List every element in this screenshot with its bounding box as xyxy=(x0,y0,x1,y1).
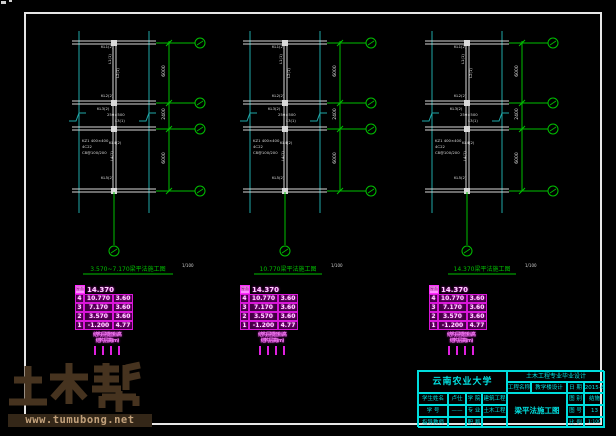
dimension-text: 2400 xyxy=(332,108,338,120)
level-table: 屋面14.370410.7703.6037.1703.6023.5703.601… xyxy=(240,285,304,355)
date-label: 日 期 xyxy=(567,382,584,393)
storey-height: 3.60 xyxy=(467,303,487,312)
plan-scale: 1/100 xyxy=(525,263,537,268)
axis-bubble-mark xyxy=(368,41,374,45)
level-table-caption: 结构层楼面标高结构层高(m) xyxy=(429,332,493,344)
tick-bar xyxy=(456,346,458,355)
dimension-text: 2400 xyxy=(514,108,520,120)
elevation: -1.200 xyxy=(84,321,113,330)
beam-label: 250×500 xyxy=(107,112,125,117)
student-id-label: 学 号 xyxy=(418,405,448,417)
dimension-text: 6000 xyxy=(161,152,167,164)
major-label: 专 业 xyxy=(466,405,482,417)
break-symbol xyxy=(139,113,156,121)
beam-label: KL2(2) xyxy=(454,93,467,98)
level-no: 2 xyxy=(240,312,249,321)
beam-label: KL2(2) xyxy=(101,93,114,98)
student-id-value: —— xyxy=(448,405,466,417)
roof-marker: 屋面 xyxy=(75,285,85,294)
level-row: 1-1.2004.77 xyxy=(75,321,139,330)
level-no: 1 xyxy=(240,321,249,330)
beam-label: KL1(2) xyxy=(272,44,285,49)
student-name-value: 卢仕 xyxy=(448,393,466,405)
plan-title: 3.570~7.170梁平法施工图 xyxy=(90,265,165,273)
level-no: 4 xyxy=(75,294,84,303)
break-symbol xyxy=(240,113,257,121)
axis-bubble-mark xyxy=(111,249,117,253)
drawing-name: 梁平法施工图 xyxy=(507,393,567,428)
elevation: 10.770 xyxy=(249,294,278,303)
axis-bubble-mark xyxy=(197,41,203,45)
break-symbol xyxy=(69,113,86,121)
beam-label: L1(1) xyxy=(278,54,283,64)
beam-label: L3(1) xyxy=(115,118,125,123)
tick-bar xyxy=(464,346,466,355)
elevation: 7.170 xyxy=(438,303,467,312)
beam-label: KL1(2) xyxy=(454,44,467,49)
watermark-brand-glyphs xyxy=(6,360,156,414)
level-no: 4 xyxy=(429,294,438,303)
beam-label: KL5(2) xyxy=(101,175,114,180)
elevation: 7.170 xyxy=(249,303,278,312)
level-table-caption: 结构层楼面标高结构层高(m) xyxy=(240,332,304,344)
college-value: 建筑工程 xyxy=(482,393,507,405)
storey-height: 3.60 xyxy=(278,312,298,321)
level-row: 410.7703.60 xyxy=(75,294,139,303)
beam-label: KL4(2) xyxy=(462,140,475,145)
advisor-value xyxy=(448,417,466,428)
tick-bar xyxy=(110,346,112,355)
beam-label: KZ1 400×400 xyxy=(82,138,109,143)
axis-bubble-mark xyxy=(464,249,470,253)
axis-bubble-mark xyxy=(550,127,556,131)
beam-label: L3(1) xyxy=(468,118,478,123)
axis-bubble-mark xyxy=(197,189,203,193)
level-table-caption: 结构层楼面标高结构层高(m) xyxy=(75,332,139,344)
roof-row: 屋面14.370 xyxy=(429,285,493,294)
roof-row: 屋面14.370 xyxy=(240,285,304,294)
axis-bubble-mark xyxy=(368,189,374,193)
level-no: 2 xyxy=(429,312,438,321)
tick-bar xyxy=(102,346,104,355)
roof-elevation: 14.370 xyxy=(441,286,468,294)
scale-value: 1:100 xyxy=(584,417,605,428)
storey-height: 3.60 xyxy=(113,303,133,312)
level-no: 1 xyxy=(75,321,84,330)
beam-label: KL5(2) xyxy=(272,175,285,180)
advisor-label: 指导教师 xyxy=(418,417,448,428)
plan-title: 14.370梁平法施工图 xyxy=(454,265,511,273)
beam-label: C8@100/200 xyxy=(253,150,278,155)
roof-marker: 屋面 xyxy=(429,285,439,294)
elevation: 10.770 xyxy=(438,294,467,303)
level-row: 1-1.2004.77 xyxy=(429,321,493,330)
title-value xyxy=(482,417,507,428)
plan-scale: 1/100 xyxy=(331,263,343,268)
beam-label: L2(1) xyxy=(468,68,473,78)
axis-bubble-mark xyxy=(197,127,203,131)
beam-label: L1(1) xyxy=(107,54,112,64)
level-table-ticks xyxy=(429,346,493,355)
dimension-text: 6000 xyxy=(514,65,520,77)
roof-elevation: 14.370 xyxy=(252,286,279,294)
beam-label: KL2(2) xyxy=(272,93,285,98)
tick-bar xyxy=(267,346,269,355)
beam-label: KL3(2) xyxy=(268,106,281,111)
beam-label: 250×500 xyxy=(460,112,478,117)
banner-title: 土木工程专业毕业设计 xyxy=(507,371,605,382)
storey-height: 4.77 xyxy=(467,321,487,330)
beam-label: KZ1 400×400 xyxy=(435,138,462,143)
level-row: 23.5703.60 xyxy=(75,312,139,321)
elevation: 3.570 xyxy=(84,312,113,321)
storey-height: 3.60 xyxy=(467,312,487,321)
tick-bar xyxy=(118,346,120,355)
level-table: 屋面14.370410.7703.6037.1703.6023.5703.601… xyxy=(75,285,139,355)
break-symbol xyxy=(492,113,509,121)
scale-label: 比 例 xyxy=(567,417,584,428)
axis-bubble-mark xyxy=(550,41,556,45)
level-table-ticks xyxy=(240,346,304,355)
level-table: 屋面14.370410.7703.6037.1703.6023.5703.601… xyxy=(429,285,493,355)
elevation: 10.770 xyxy=(84,294,113,303)
storey-height: 3.60 xyxy=(278,294,298,303)
axis-bubble-mark xyxy=(197,101,203,105)
beam-label: 4C22 xyxy=(435,144,445,149)
storey-height: 3.60 xyxy=(467,294,487,303)
roof-marker: 屋面 xyxy=(240,285,250,294)
axis-bubble-mark xyxy=(550,101,556,105)
sheet-number-label: 图 号 xyxy=(567,405,584,417)
project-label: 工程名称 xyxy=(507,382,531,393)
elevation: 3.570 xyxy=(249,312,278,321)
level-no: 4 xyxy=(240,294,249,303)
level-no: 3 xyxy=(429,303,438,312)
storey-height: 4.77 xyxy=(278,321,298,330)
beam-label: 4C22 xyxy=(82,144,92,149)
major-value: 土木工程 xyxy=(482,405,507,417)
plan-title: 10.770梁平法施工图 xyxy=(260,265,317,273)
elevation: 3.570 xyxy=(438,312,467,321)
level-no: 3 xyxy=(75,303,84,312)
level-table-ticks xyxy=(75,346,139,355)
beam-label: KL5(2) xyxy=(454,175,467,180)
level-no: 1 xyxy=(429,321,438,330)
level-row: 37.1703.60 xyxy=(240,303,304,312)
beam-label: KL4(2) xyxy=(109,140,122,145)
tick-bar xyxy=(275,346,277,355)
beam-label: L4(1) xyxy=(462,151,467,161)
level-row: 23.5703.60 xyxy=(429,312,493,321)
axis-bubble-mark xyxy=(368,101,374,105)
sheet-type-value: 结施 xyxy=(584,393,605,405)
storey-height: 3.60 xyxy=(113,312,133,321)
beam-label: 4C22 xyxy=(253,144,263,149)
elevation: -1.200 xyxy=(249,321,278,330)
project-value: 教学楼设计 xyxy=(531,382,567,393)
beam-label: KL3(2) xyxy=(97,106,110,111)
student-name-label: 学生姓名 xyxy=(418,393,448,405)
beam-label: C8@100/200 xyxy=(435,150,460,155)
level-row: 410.7703.60 xyxy=(429,294,493,303)
storey-height: 4.77 xyxy=(113,321,133,330)
storey-height: 3.60 xyxy=(113,294,133,303)
level-row: 23.5703.60 xyxy=(240,312,304,321)
sheet-number-value: 13 xyxy=(584,405,605,417)
tick-bar xyxy=(448,346,450,355)
tick-bar xyxy=(283,346,285,355)
level-no: 2 xyxy=(75,312,84,321)
elevation: -1.200 xyxy=(438,321,467,330)
level-row: 410.7703.60 xyxy=(240,294,304,303)
beam-label: C8@100/200 xyxy=(82,150,107,155)
cad-viewport: 600024006000KL1(2)L1(1)L2(1)KL2(2)KL3(2)… xyxy=(0,0,616,436)
plan-scale: 1/100 xyxy=(182,263,194,268)
university-name: 云南农业大学 xyxy=(418,371,507,393)
axis-bubble-mark xyxy=(368,127,374,131)
date-value: 2015-6 xyxy=(584,382,605,393)
beam-label: L4(1) xyxy=(280,151,285,161)
beam-label: L2(1) xyxy=(286,68,291,78)
elevation: 7.170 xyxy=(84,303,113,312)
beam-label: 250×500 xyxy=(278,112,296,117)
sheet-type-label: 图 别 xyxy=(567,393,584,405)
title-label: 职 称 xyxy=(466,417,482,428)
beam-label: KL1(2) xyxy=(101,44,114,49)
storey-height: 3.60 xyxy=(278,303,298,312)
break-symbol xyxy=(422,113,439,121)
dimension-text: 6000 xyxy=(332,152,338,164)
beam-label: KZ1 400×400 xyxy=(253,138,280,143)
beam-label: KL3(2) xyxy=(450,106,463,111)
dimension-text: 6000 xyxy=(514,152,520,164)
level-row: 37.1703.60 xyxy=(75,303,139,312)
tick-bar xyxy=(472,346,474,355)
beam-label: L2(1) xyxy=(115,68,120,78)
beam-label: L4(1) xyxy=(109,151,114,161)
college-label: 学 院 xyxy=(466,393,482,405)
title-block: 云南农业大学 土木工程专业毕业设计 工程名称 教学楼设计 日 期 2015-6 … xyxy=(417,370,604,427)
roof-elevation: 14.370 xyxy=(87,286,114,294)
tick-bar xyxy=(94,346,96,355)
dimension-text: 6000 xyxy=(161,65,167,77)
roof-row: 屋面14.370 xyxy=(75,285,139,294)
watermark-url: www.tumubong.net xyxy=(8,414,152,427)
axis-bubble-mark xyxy=(550,189,556,193)
level-no: 3 xyxy=(240,303,249,312)
beam-label: L3(1) xyxy=(286,118,296,123)
level-row: 1-1.2004.77 xyxy=(240,321,304,330)
axis-bubble-mark xyxy=(282,249,288,253)
beam-label: KL4(2) xyxy=(280,140,293,145)
dimension-text: 2400 xyxy=(161,108,167,120)
beam-label: L1(1) xyxy=(460,54,465,64)
dimension-text: 6000 xyxy=(332,65,338,77)
break-symbol xyxy=(310,113,327,121)
tick-bar xyxy=(259,346,261,355)
level-row: 37.1703.60 xyxy=(429,303,493,312)
watermark: 土木帮 xyxy=(6,360,156,428)
